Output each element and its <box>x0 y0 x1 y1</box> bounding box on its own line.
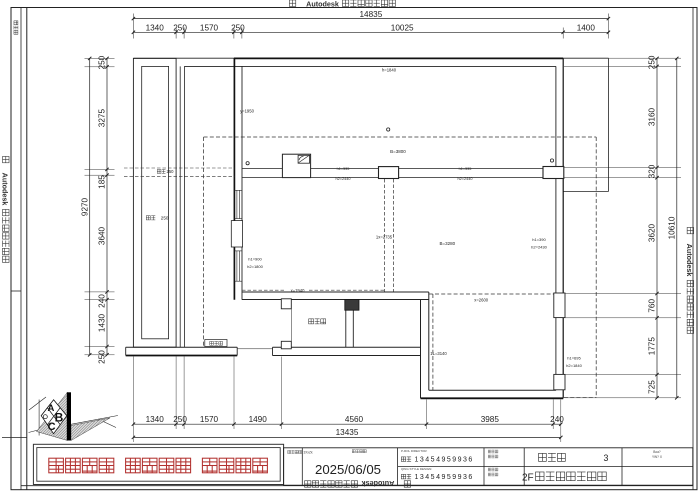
svg-text:Autodesk: Autodesk <box>685 244 694 277</box>
svg-text:3: 3 <box>604 453 609 463</box>
svg-text:h1=335: h1=335 <box>337 167 350 171</box>
svg-text:Autodesk: Autodesk <box>1 173 10 206</box>
svg-text:h2=2440: h2=2440 <box>336 177 351 181</box>
svg-text:1430: 1430 <box>98 313 107 332</box>
svg-text:y=1950: y=1950 <box>240 109 255 114</box>
svg-text:1570: 1570 <box>200 415 219 424</box>
svg-text:B: B <box>55 411 64 425</box>
svg-text:13435: 13435 <box>336 428 359 437</box>
svg-text:QING STYLE DESIGN:: QING STYLE DESIGN: <box>401 467 432 471</box>
svg-text:B=3280: B=3280 <box>439 241 455 246</box>
svg-text:h2=2440: h2=2440 <box>458 177 473 181</box>
svg-text:h1=390: h1=390 <box>532 237 546 242</box>
svg-text:2025/06/05: 2025/06/05 <box>315 462 381 477</box>
svg-text:185: 185 <box>98 175 107 189</box>
svg-text:760: 760 <box>648 299 657 313</box>
svg-text:3620: 3620 <box>648 223 657 242</box>
svg-text:250: 250 <box>173 415 187 424</box>
svg-text:10025: 10025 <box>391 24 414 33</box>
svg-text:1340: 1340 <box>146 415 165 424</box>
svg-text:240: 240 <box>98 294 107 308</box>
svg-text:3985: 3985 <box>481 415 500 424</box>
svg-text:240: 240 <box>550 415 564 424</box>
svg-text:h1=900: h1=900 <box>248 257 262 262</box>
svg-text:C: C <box>48 421 56 433</box>
svg-text:1x=2735: 1x=2735 <box>376 234 393 239</box>
svg-text:1400: 1400 <box>577 24 596 33</box>
svg-text:10610: 10610 <box>668 216 677 239</box>
svg-text:h1=335: h1=335 <box>459 167 472 171</box>
svg-text:3275: 3275 <box>98 109 107 128</box>
svg-text:A: A <box>47 403 54 414</box>
svg-text:Autodesk: Autodesk <box>362 479 395 488</box>
svg-text:13454959936: 13454959936 <box>415 474 474 481</box>
svg-text:h2=2430: h2=2430 <box>531 245 547 250</box>
svg-text:1775: 1775 <box>648 337 657 356</box>
svg-text:250: 250 <box>231 24 245 33</box>
svg-text:250: 250 <box>98 55 107 69</box>
svg-text:x=2600: x=2600 <box>474 298 489 303</box>
svg-text:3XxZk: 3XxZk <box>304 450 313 454</box>
svg-text:320: 320 <box>648 164 657 178</box>
svg-text:h1=695: h1=695 <box>567 356 581 361</box>
svg-text:1490: 1490 <box>249 415 268 424</box>
svg-text:h2=1840: h2=1840 <box>566 363 582 368</box>
svg-text:9270: 9270 <box>81 197 90 216</box>
svg-text:250: 250 <box>98 350 107 364</box>
svg-text:725: 725 <box>648 380 657 394</box>
svg-text:2F: 2F <box>522 473 534 484</box>
svg-text:13454959936: 13454959936 <box>415 456 474 463</box>
svg-text:4560: 4560 <box>345 415 364 424</box>
svg-text:1L=3140: 1L=3140 <box>430 351 447 356</box>
svg-text:B=3800: B=3800 <box>390 149 406 154</box>
svg-text:YW? X: YW? X <box>652 455 663 459</box>
svg-text:3640: 3640 <box>98 226 107 245</box>
svg-text:250: 250 <box>173 24 187 33</box>
svg-text:h2=1800: h2=1800 <box>247 264 263 269</box>
svg-text:250: 250 <box>161 216 169 221</box>
svg-text:P-ROL DIRECTOR:: P-ROL DIRECTOR: <box>401 449 428 453</box>
svg-text:Autodesk: Autodesk <box>306 0 339 8</box>
svg-text:14835: 14835 <box>360 10 383 19</box>
svg-text:h=1840: h=1840 <box>382 68 397 73</box>
svg-text:1340: 1340 <box>146 24 165 33</box>
svg-text:250: 250 <box>648 55 657 69</box>
svg-text:Boa?: Boa? <box>653 450 661 454</box>
svg-text:3160: 3160 <box>648 107 657 126</box>
svg-text:250: 250 <box>167 169 175 174</box>
svg-text:x=1940: x=1940 <box>291 288 306 293</box>
svg-text:1570: 1570 <box>200 24 219 33</box>
